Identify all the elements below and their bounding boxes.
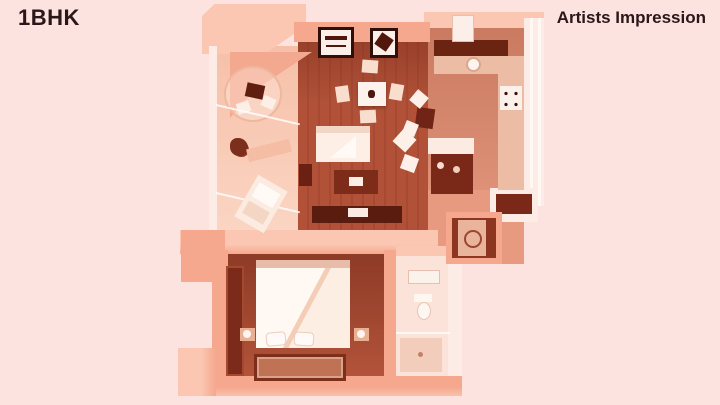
kitchen-sink	[466, 57, 481, 72]
utility-niche-opening	[496, 194, 532, 214]
wall-art-frame	[370, 28, 398, 58]
dining-chair	[362, 59, 379, 73]
nightstand	[240, 328, 255, 341]
toilet-cistern	[414, 294, 432, 302]
washing-machine	[458, 220, 486, 256]
side-table	[299, 164, 312, 186]
dining-table	[358, 82, 386, 106]
pillow	[294, 331, 315, 346]
kitchen-island-counter	[428, 138, 474, 154]
dining-chair	[389, 83, 405, 101]
bedroom-rug	[254, 354, 346, 381]
refrigerator	[452, 15, 474, 42]
sofa	[316, 126, 370, 162]
kitchen-counter-right	[498, 56, 524, 190]
artists-impression-label: Artists Impression	[557, 8, 706, 28]
shower-area	[400, 338, 442, 372]
kitchen-window-wall	[524, 18, 544, 206]
living-room-top-wall	[294, 22, 430, 42]
pillow	[265, 331, 286, 347]
wall-art-frame	[318, 27, 354, 58]
toilet	[417, 302, 431, 320]
plan-type-label: 1BHK	[18, 5, 80, 31]
floor-plan-image: 1BHK Artists Impression	[0, 0, 720, 405]
bedroom-right-wall	[384, 250, 396, 382]
dining-chair	[335, 85, 350, 103]
washbasin-counter	[408, 270, 440, 284]
kitchen-dark-counter	[431, 154, 473, 194]
shower-partition	[396, 332, 450, 334]
bedroom-window	[226, 266, 244, 376]
coffee-table	[334, 170, 378, 194]
dining-chair	[360, 110, 377, 124]
nightstand	[354, 328, 369, 341]
bathroom-outer-wall	[448, 254, 462, 382]
gas-stove	[500, 86, 522, 110]
balcony-railing-wall	[209, 46, 217, 238]
potted-plant	[230, 138, 248, 156]
bottom-left-wall-step	[178, 348, 216, 396]
television	[348, 208, 368, 217]
